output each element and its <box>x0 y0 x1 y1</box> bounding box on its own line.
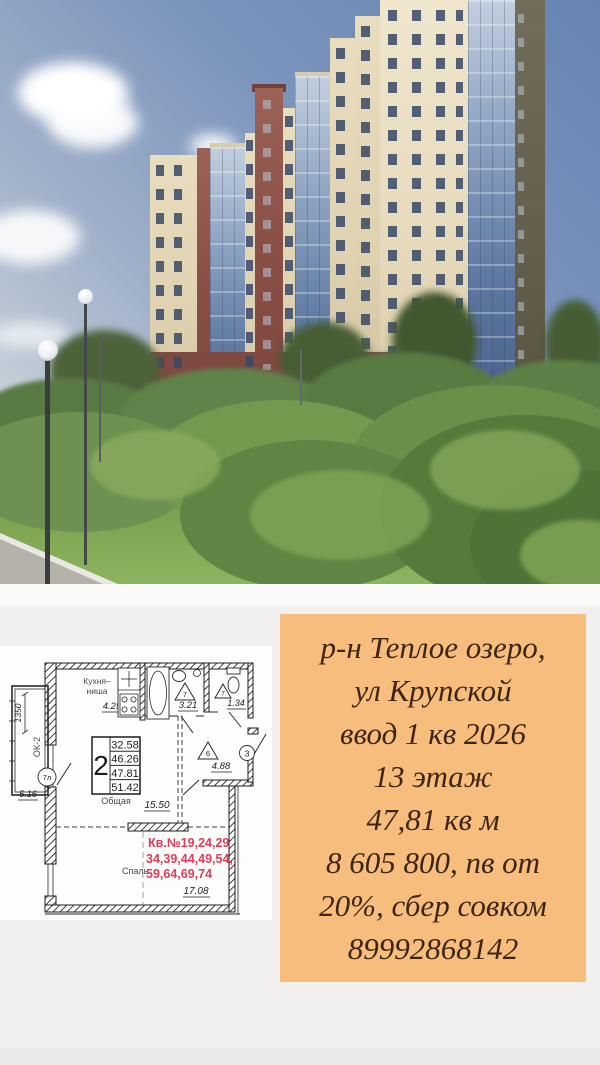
area-value: 51.42 <box>111 782 139 794</box>
bath-area-label: 3.21 <box>179 700 198 711</box>
listing-location: р-н Теплое озеро, <box>280 626 586 669</box>
living-area-label: 15.50 <box>144 800 169 811</box>
window-column <box>388 10 397 370</box>
toilet-icon <box>227 668 240 674</box>
floor-plan-drawing: 1350 ОК-2 5.16 7л Кухня– ниша 4.25 <box>0 646 272 920</box>
bath-marker-label: 7 <box>183 692 187 699</box>
area-value: 32.58 <box>111 740 139 752</box>
apartment-numbers-line: 59,64,69,74 <box>146 867 212 881</box>
globe-lamp-pole <box>45 361 50 584</box>
listing-price: 8 605 800, пв от <box>280 841 586 884</box>
cloud <box>48 96 138 148</box>
bathtub-icon <box>147 667 169 719</box>
window-column <box>174 165 182 405</box>
area-value: 47.81 <box>111 768 139 780</box>
window-column <box>361 26 370 376</box>
bathroom: 7 3.21 7 1.34 <box>147 667 246 719</box>
ad-page: 1350 ОК-2 5.16 7л Кухня– ниша 4.25 <box>0 0 600 1065</box>
street-lamp-pole <box>99 342 101 462</box>
balcony-marker-label: 7л <box>43 773 52 782</box>
bush-highlight <box>90 430 220 500</box>
globe-lamp <box>78 289 93 304</box>
area-table-caption: Общая <box>101 796 131 806</box>
kitchen-label-1: Кухня– <box>83 676 111 686</box>
sink-icon <box>173 671 186 682</box>
entry-marker-label: 3 <box>245 749 250 759</box>
building-photo <box>0 0 600 584</box>
listing-card: р-н Теплое озеро, ул Крупской ввод 1 кв … <box>280 614 586 982</box>
street-lamp-arm <box>97 336 119 348</box>
cloud <box>0 210 80 264</box>
listing-size: 47,81 кв м <box>280 798 586 841</box>
wc-area-label: 1.34 <box>227 698 245 708</box>
globe-lamp <box>38 340 58 360</box>
wc-marker-label: 7 <box>221 691 225 698</box>
apartment-numbers-line: Кв.№19,24,29 <box>148 836 229 850</box>
balcony-area-label: 5.16 <box>19 789 37 799</box>
kitchen-label-2: ниша <box>87 686 108 696</box>
apartment-numbers: Кв.№19,24,29 34,39,44,49,54, 59,64,69,74 <box>146 836 233 881</box>
cloud <box>0 322 70 348</box>
listing-street: ул Крупской <box>280 669 586 712</box>
bush-highlight <box>250 470 430 560</box>
street-lamp-pole <box>300 350 302 405</box>
window-column <box>263 100 271 370</box>
kitchen: Кухня– ниша 4.25 <box>83 668 140 717</box>
window-column <box>518 14 524 384</box>
hall: 6 4.88 3 <box>198 742 255 772</box>
bedroom-area-label: 17.08 <box>183 886 208 897</box>
listing-completion: ввод 1 кв 2026 <box>280 712 586 755</box>
room-count: 2 <box>93 750 109 781</box>
window-column <box>246 140 253 390</box>
bottom-strip <box>0 1048 600 1065</box>
white-separator <box>0 584 600 606</box>
balcony-dim-label: 1350 <box>13 703 23 722</box>
globe-lamp-pole <box>84 303 87 565</box>
listing-phone: 89992868142 <box>280 927 586 970</box>
floor-plan: 1350 ОК-2 5.16 7л Кухня– ниша 4.25 <box>0 646 272 920</box>
hall-area-label: 4.88 <box>212 761 231 772</box>
apartment-numbers-line: 34,39,44,49,54, <box>146 852 233 866</box>
bush-highlight <box>430 430 580 510</box>
bedroom-label: Спаль <box>122 866 149 876</box>
listing-terms: 20%, сбер совком <box>280 884 586 927</box>
area-value: 46.26 <box>111 754 139 766</box>
listing-floor: 13 этаж <box>280 755 586 798</box>
hall-marker-label: 6 <box>206 749 210 758</box>
area-table: 2 32.58 46.26 47.81 51.42 Общая <box>92 737 140 806</box>
balcony-window-label: ОК-2 <box>32 737 42 757</box>
